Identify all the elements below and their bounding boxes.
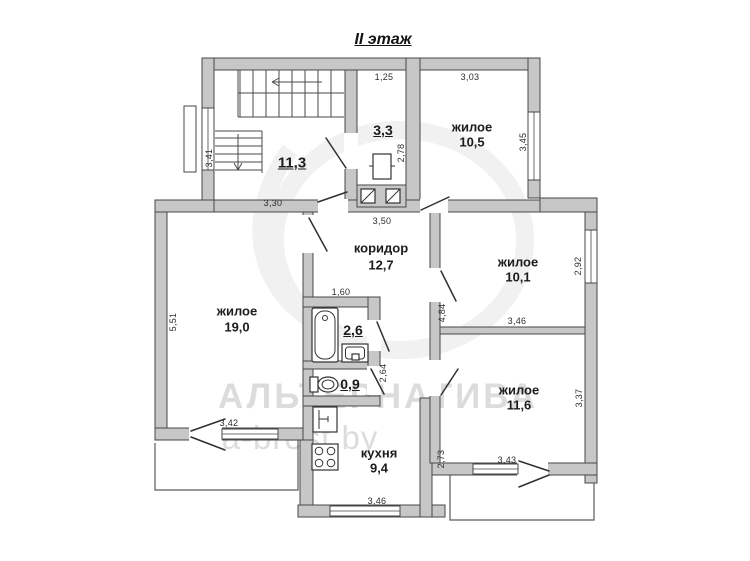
toilet xyxy=(310,377,338,392)
room-label-wc-area: 0,9 xyxy=(340,376,359,392)
dim-label: 3,45 xyxy=(518,133,528,152)
floorplan-drawing xyxy=(0,0,750,561)
room-label-living-right-area: 10,1 xyxy=(505,270,530,285)
dim-label: 3,30 xyxy=(264,198,283,208)
dim-label: 3,46 xyxy=(508,316,527,326)
room-label-corridor-name: коридор xyxy=(354,241,408,256)
dim-label: 4,84 xyxy=(437,304,447,323)
dim-label: 3,41 xyxy=(204,149,214,168)
dim-label: 2,92 xyxy=(573,257,583,276)
dim-label: 2,78 xyxy=(396,144,406,163)
room-label-hall-area: 11,3 xyxy=(278,155,306,172)
dim-label: 3,46 xyxy=(368,496,387,506)
dim-label: 3,42 xyxy=(220,418,239,428)
room-label-living-left-name: жилое xyxy=(217,304,257,319)
room-label-living-bottom-name: жилое xyxy=(499,383,539,398)
room-label-living-left-area: 19,0 xyxy=(224,320,249,335)
room-label-living-bottom-area: 11,6 xyxy=(507,398,532,413)
dim-label: 5,51 xyxy=(168,313,178,332)
bathtub xyxy=(312,308,338,362)
fridge xyxy=(313,407,337,432)
washbasin-small-room xyxy=(369,154,395,179)
bathroom-sink xyxy=(342,344,368,362)
room-label-kitchen-area: 9,4 xyxy=(370,461,388,476)
dim-label: 3,50 xyxy=(373,216,392,226)
floorplan-page: АЛЬТЕРНАТИВА a-brest.by xyxy=(0,0,750,561)
dim-label: 2,64 xyxy=(378,364,388,383)
room-label-living-top-area: 10,5 xyxy=(459,135,484,150)
room-label-small-room-area: 3,3 xyxy=(373,122,392,138)
dim-label: 2,73 xyxy=(436,450,446,469)
page-title: II этаж xyxy=(354,31,411,49)
window-sill xyxy=(184,106,196,172)
room-label-living-top-name: жилое xyxy=(452,120,492,135)
dim-label: 3,03 xyxy=(461,72,480,82)
dim-label: 3,43 xyxy=(498,455,517,465)
room-label-living-right-name: жилое xyxy=(498,255,538,270)
stove xyxy=(312,444,338,470)
dim-label: 1,25 xyxy=(375,72,394,82)
dim-label: 1,60 xyxy=(332,287,351,297)
dim-label: 3,37 xyxy=(574,389,584,408)
room-label-kitchen-name: кухня xyxy=(361,446,398,461)
room-label-bathroom-area: 2,6 xyxy=(343,322,362,338)
room-label-corridor-area: 12,7 xyxy=(368,258,393,273)
